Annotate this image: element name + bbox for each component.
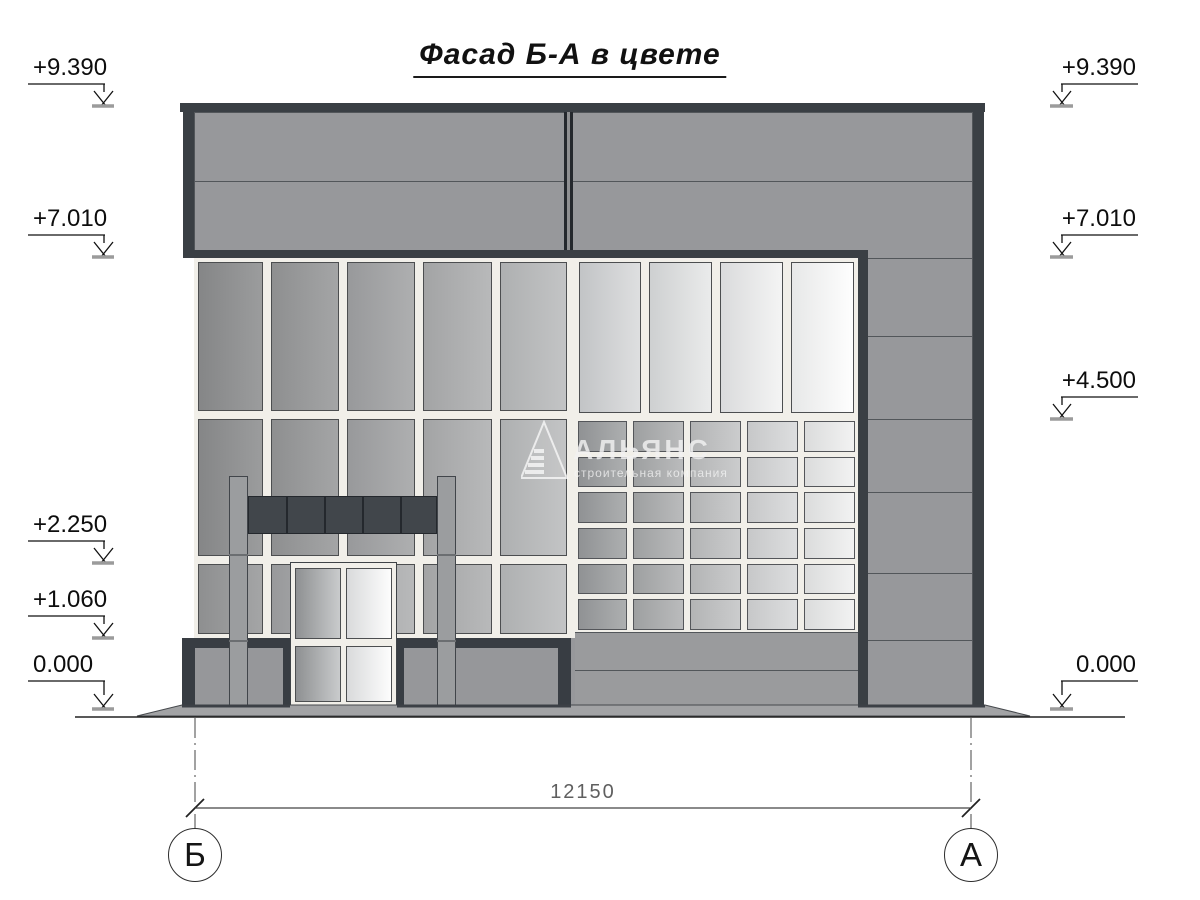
elevation-value: +4.500 xyxy=(1062,367,1136,395)
axis-label-b: Б xyxy=(184,836,206,874)
elevation-value: +7.010 xyxy=(1062,205,1136,233)
axis-circle-a: А xyxy=(944,828,998,882)
dimension-value: 12150 xyxy=(483,781,683,804)
axis-label-a: А xyxy=(960,836,982,874)
elevation-value: +9.390 xyxy=(33,54,107,82)
drawing-canvas: Фасад Б-А в цвете АЛЬЯНС строительная ко… xyxy=(0,0,1200,900)
elevation-value: +7.010 xyxy=(33,205,107,233)
axis-circle-b: Б xyxy=(168,828,222,882)
elevation-value: 0.000 xyxy=(1076,651,1136,679)
elevation-value: +9.390 xyxy=(1062,54,1136,82)
elevation-value: +2.250 xyxy=(33,511,107,539)
elevation-value: 0.000 xyxy=(33,651,93,679)
elevation-value: +1.060 xyxy=(33,586,107,614)
annotation-lines xyxy=(0,0,1200,900)
